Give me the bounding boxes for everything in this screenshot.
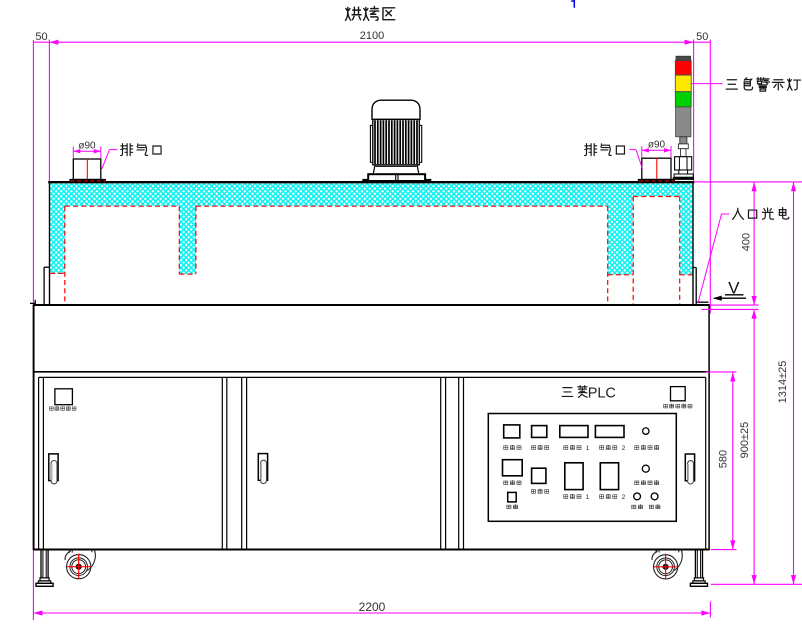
svg-text:ø90: ø90 <box>648 140 666 151</box>
svg-text:400: 400 <box>741 233 753 251</box>
svg-text:1: 1 <box>586 445 590 452</box>
svg-text:50: 50 <box>696 31 708 43</box>
svg-text:2: 2 <box>622 445 626 452</box>
svg-text:ø90: ø90 <box>78 140 96 151</box>
svg-text:PLC: PLC <box>588 386 616 402</box>
svg-text:2: 2 <box>622 494 626 501</box>
svg-text:2200: 2200 <box>359 600 386 614</box>
svg-text:50: 50 <box>35 31 47 43</box>
svg-text:1314±25: 1314±25 <box>777 361 789 404</box>
svg-text:2100: 2100 <box>360 30 384 42</box>
svg-text:900±25: 900±25 <box>739 422 751 459</box>
svg-text:580: 580 <box>718 450 730 468</box>
svg-text:1: 1 <box>586 494 590 501</box>
